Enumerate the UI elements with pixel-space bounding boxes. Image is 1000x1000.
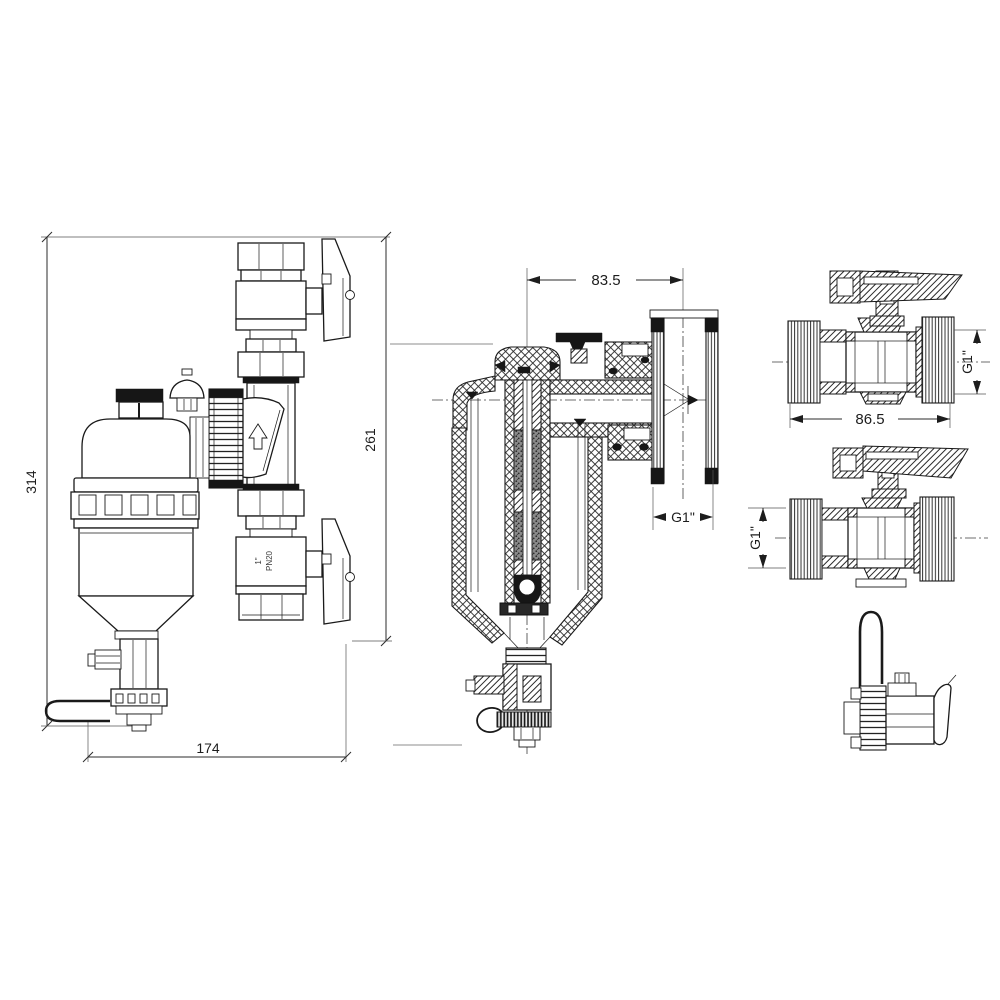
filter-top-cap: [116, 389, 163, 418]
side-flange: [934, 684, 951, 744]
filter-canister: [71, 417, 209, 631]
dim-port-label: G1": [671, 509, 695, 525]
section-shell: [452, 376, 652, 645]
assembly-side-view: 314 261 174: [23, 232, 392, 762]
vent-handle: [556, 333, 602, 349]
castle-nut-ring: [71, 492, 199, 519]
section-top-cap: [495, 333, 602, 380]
filter-inlet-pipe: [209, 383, 295, 488]
flow-arrow-icon: [688, 395, 698, 405]
top-ball-valve: [236, 239, 355, 383]
air-vent: [170, 369, 204, 411]
ball-valve-section-mid: G1": [747, 446, 988, 587]
bottom-ball-valve: PN20 1": [236, 484, 355, 624]
magnet-core: [500, 380, 550, 652]
filter-section-view: 83.5: [390, 268, 718, 754]
dim-port-label: G1": [959, 350, 975, 374]
dim-width-label: 174: [196, 740, 220, 756]
section-drain: [466, 648, 551, 747]
dim-length-label: 86.5: [855, 411, 884, 428]
dim-port-label: G1": [747, 526, 763, 550]
tee-port: [650, 310, 718, 484]
drain-valve-view: [844, 612, 956, 750]
ball-valve-section-top: 86.5 G1": [772, 271, 990, 428]
valve-body: [788, 317, 954, 404]
valve-marking-size: 1": [254, 557, 263, 564]
valve-handle: [833, 446, 968, 498]
valve-body: [790, 497, 954, 587]
magnetic-filter-drawing: 314 261 174: [0, 0, 1000, 1000]
dim-center-offset-label: 83.5: [591, 272, 620, 289]
ratchet-union-ring: [209, 389, 243, 488]
drain-assembly: [46, 631, 167, 731]
drain-wire-loop: [46, 701, 110, 721]
dim-total-height-label: 314: [23, 470, 39, 494]
drain-loop-handle: [860, 612, 882, 694]
valve-marking-pn: PN20: [265, 550, 274, 571]
technical-drawing-page: 314 261 174: [0, 0, 1000, 1000]
valve-handle: [322, 519, 355, 624]
dim-right-height-label: 261: [362, 428, 378, 452]
outlet-union: [605, 342, 652, 460]
valve-handle: [322, 239, 355, 341]
